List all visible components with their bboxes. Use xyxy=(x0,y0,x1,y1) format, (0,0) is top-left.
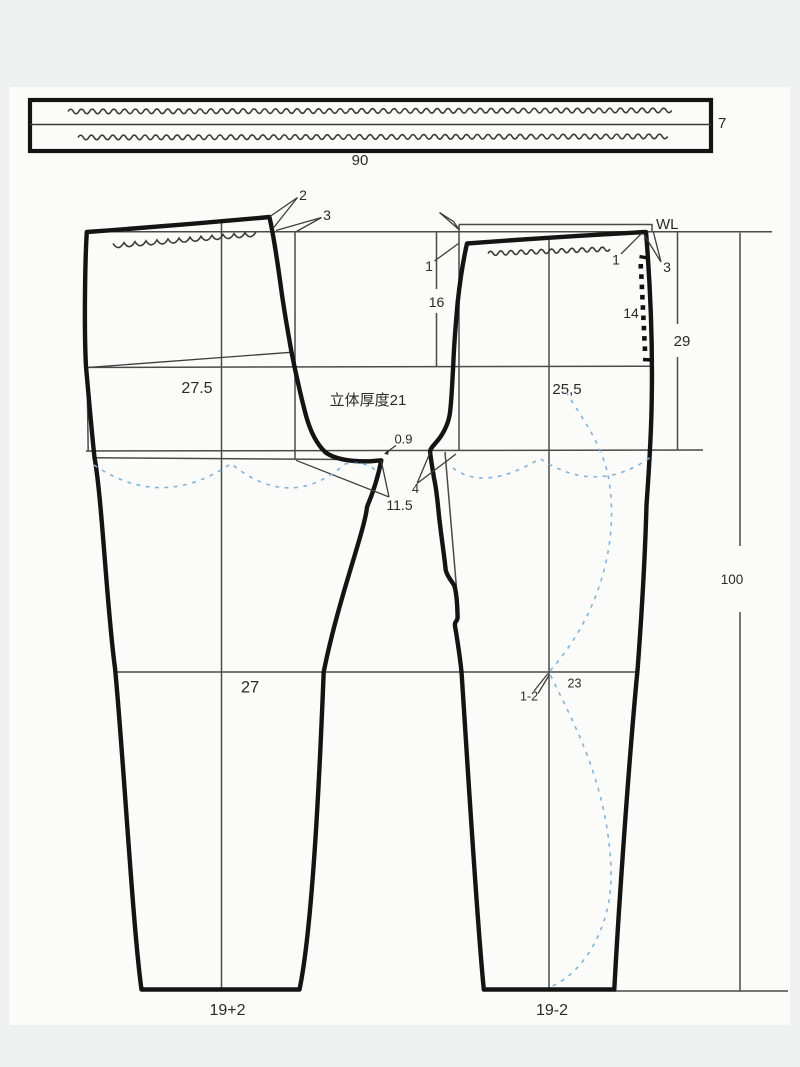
svg-text:29: 29 xyxy=(674,333,691,350)
svg-text:27: 27 xyxy=(241,679,259,697)
svg-text:25,5: 25,5 xyxy=(552,381,581,398)
svg-text:90: 90 xyxy=(352,152,369,169)
svg-text:1-2: 1-2 xyxy=(520,690,538,704)
svg-text:19+2: 19+2 xyxy=(209,1002,245,1019)
svg-text:0.9: 0.9 xyxy=(394,432,412,447)
svg-text:27.5: 27.5 xyxy=(181,380,212,397)
svg-text:立体厚度21: 立体厚度21 xyxy=(330,392,407,409)
svg-text:7: 7 xyxy=(718,115,726,132)
svg-text:WL: WL xyxy=(656,216,679,233)
svg-text:14: 14 xyxy=(623,305,639,321)
svg-text:16: 16 xyxy=(429,294,445,310)
svg-text:19-2: 19-2 xyxy=(536,1002,568,1019)
svg-text:11.5: 11.5 xyxy=(386,497,412,513)
svg-text:100: 100 xyxy=(721,572,744,587)
svg-text:3: 3 xyxy=(663,259,671,275)
svg-text:23: 23 xyxy=(568,677,582,691)
svg-text:2: 2 xyxy=(299,187,307,203)
svg-text:3: 3 xyxy=(323,207,331,223)
svg-text:1: 1 xyxy=(612,252,620,268)
svg-text:1: 1 xyxy=(425,258,433,274)
